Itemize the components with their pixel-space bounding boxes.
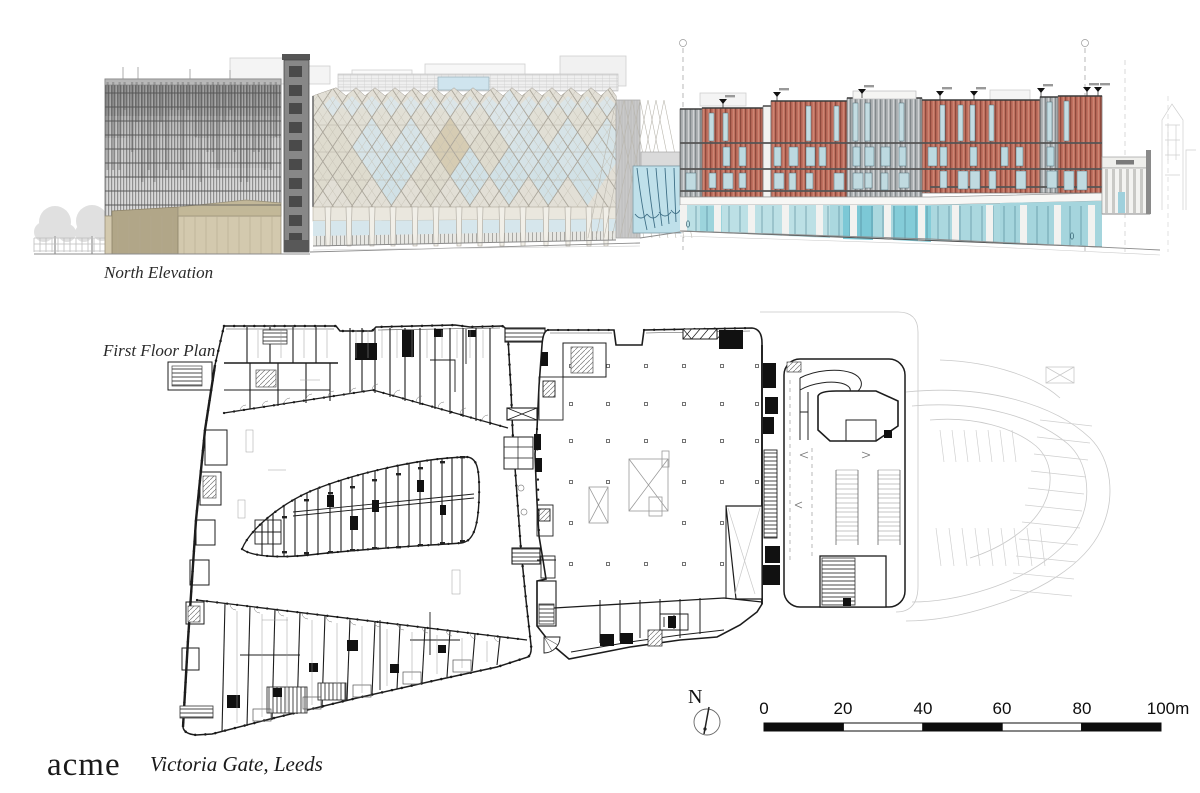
svg-text:80: 80 <box>1073 699 1092 718</box>
svg-text:20: 20 <box>834 699 853 718</box>
svg-text:First Floor Plan: First Floor Plan <box>102 341 215 360</box>
svg-text:100m: 100m <box>1147 699 1190 718</box>
svg-text:Victoria Gate, Leeds: Victoria Gate, Leeds <box>150 752 323 776</box>
svg-text:40: 40 <box>914 699 933 718</box>
svg-text:0: 0 <box>759 699 768 718</box>
svg-text:North Elevation: North Elevation <box>103 263 213 282</box>
svg-text:acme: acme <box>47 747 121 783</box>
svg-text:N: N <box>688 686 702 708</box>
svg-text:60: 60 <box>993 699 1012 718</box>
